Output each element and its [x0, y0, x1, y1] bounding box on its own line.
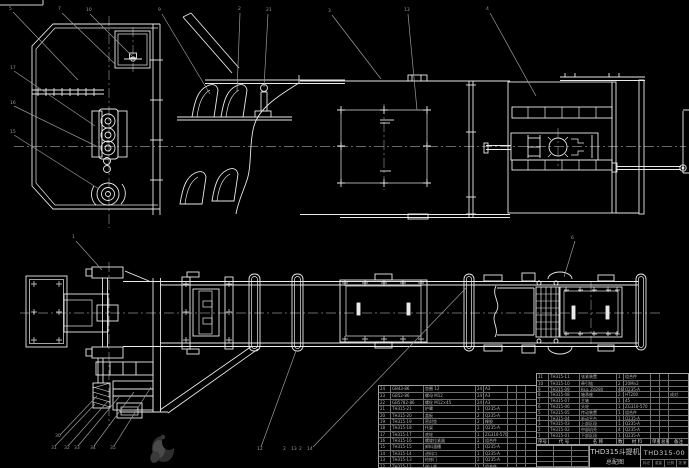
- leader-line: [55, 404, 95, 446]
- bom-table-right: 11TH315-11张紧装置1组合件10TH315-10牵引链220Mn29TH…: [536, 373, 689, 445]
- cad-sheet: 5710922131341716151630313233343512213214…: [0, 0, 689, 468]
- bom-header-cell: 备注: [668, 438, 688, 444]
- leader-line: [78, 397, 119, 446]
- leader-line: [13, 12, 78, 80]
- callout-number: 33: [74, 445, 80, 451]
- ink-smudge: [149, 434, 177, 464]
- drawing-number: THD315-00: [641, 446, 688, 460]
- leader-line: [76, 241, 102, 270]
- drawing-name-box: THD315斗提机 总配图: [589, 446, 641, 467]
- callout-number: 5: [9, 6, 12, 12]
- buckets: [180, 85, 247, 204]
- sheet-border-fragment: [0, 0, 43, 5]
- callout-number: 32: [64, 445, 70, 451]
- title-footer-cell: 重量: [653, 460, 665, 467]
- leader-line: [94, 392, 134, 446]
- leader-line: [237, 13, 240, 91]
- leader-line: [408, 14, 417, 110]
- leader-line: [68, 401, 108, 446]
- bom-cell: 12: [379, 463, 390, 468]
- drawing-number-box: THD315-00 标记重量比例共 张 第 张: [641, 446, 688, 467]
- takeup-wheel-stack: [92, 109, 127, 173]
- bom-cell: [516, 463, 525, 468]
- callout-number: 2: [283, 446, 286, 452]
- title-footer-cell: 标记: [641, 460, 653, 467]
- signature-cell: [537, 462, 554, 467]
- leader-line: [14, 71, 95, 126]
- bom-header-cell: 材 料: [623, 438, 650, 444]
- boot-wheel: [92, 183, 126, 205]
- casing-left-wall: [150, 24, 163, 215]
- callout-number: 21: [266, 7, 272, 13]
- callout-number: 13: [404, 7, 410, 13]
- callout-number: 30: [55, 433, 61, 439]
- bom-header-cell: 名 称: [579, 438, 616, 444]
- casing-flanges: [249, 274, 646, 351]
- callout-number: 34: [90, 445, 96, 451]
- callout-number: 13: [291, 446, 297, 452]
- callout-number: 12: [257, 446, 263, 452]
- leader-line: [264, 14, 268, 87]
- callout-number: 16: [10, 100, 16, 106]
- leader-line: [14, 106, 98, 147]
- bom-cell: 逆止器: [423, 463, 475, 468]
- leader-line: [14, 135, 99, 189]
- anchor-bolt: [255, 85, 271, 118]
- bom-cell: 1: [475, 463, 483, 468]
- callout-number: 1: [72, 234, 75, 240]
- signature-grid: [537, 446, 589, 467]
- callout-number: 2: [299, 446, 302, 452]
- callout-number: 7: [58, 6, 61, 12]
- tail-shaft: [86, 267, 123, 358]
- drawing-name: THD315斗提机: [590, 447, 639, 457]
- leader-line: [60, 396, 97, 435]
- callout-number: 3: [328, 8, 331, 14]
- bom-cell: 组合件: [483, 463, 507, 468]
- drive-housing-top: [484, 73, 689, 214]
- boot-flange-rail: [32, 88, 104, 96]
- tail-flange-box: [26, 276, 108, 347]
- bom-header-cell: 总重: [659, 438, 668, 444]
- leader-line: [332, 15, 381, 79]
- leader-line: [62, 13, 115, 64]
- leader-line: [261, 351, 296, 447]
- title-footer-cells: 标记重量比例共 张 第 张: [641, 460, 688, 467]
- title-block: THD315斗提机 总配图 THD315-00 标记重量比例共 张 第 张: [536, 445, 689, 468]
- callout-number: 14: [307, 446, 313, 452]
- callout-number: 17: [10, 65, 16, 71]
- boot-access-box: [115, 31, 150, 68]
- callout-number: 15: [10, 129, 16, 135]
- leader-line: [490, 13, 536, 96]
- callout-number: 9: [158, 7, 161, 13]
- signature-cell: [572, 462, 589, 467]
- title-footer-cell: 共 张 第 张: [677, 460, 688, 467]
- callout-number: 35: [110, 445, 116, 451]
- callout-leader-lines: [13, 12, 575, 447]
- bom-header-cell: 代 号: [548, 438, 579, 444]
- callout-number: 10: [86, 7, 92, 13]
- callout-number: 31: [51, 445, 57, 451]
- takeup-frame: [93, 358, 153, 418]
- leader-line: [564, 241, 575, 277]
- head-chute: [183, 13, 239, 73]
- signature-cell: [554, 462, 571, 467]
- leader-line: [90, 14, 132, 56]
- bom-cell: TH315-12: [390, 463, 423, 468]
- bom-header-cell: 数量: [616, 438, 623, 444]
- bom-header-cell: 单重: [650, 438, 659, 444]
- drawing-subtitle: 总配图: [606, 457, 624, 466]
- bom-table-left: 24GB43-86垫圈 1224A323GB52-86螺母 M1224A322G…: [378, 385, 537, 468]
- callout-number: 2: [238, 6, 241, 12]
- callout-number: 4: [486, 6, 489, 12]
- callout-number: 6: [571, 235, 574, 241]
- title-footer-cell: 比例: [665, 460, 677, 467]
- top-view: [32, 13, 689, 219]
- bom-cell: [525, 463, 536, 468]
- middle-casing: [300, 75, 510, 219]
- bom-header-cell: 序号: [537, 438, 548, 444]
- discharge-chute: [120, 271, 258, 413]
- bom-cell: [507, 463, 516, 468]
